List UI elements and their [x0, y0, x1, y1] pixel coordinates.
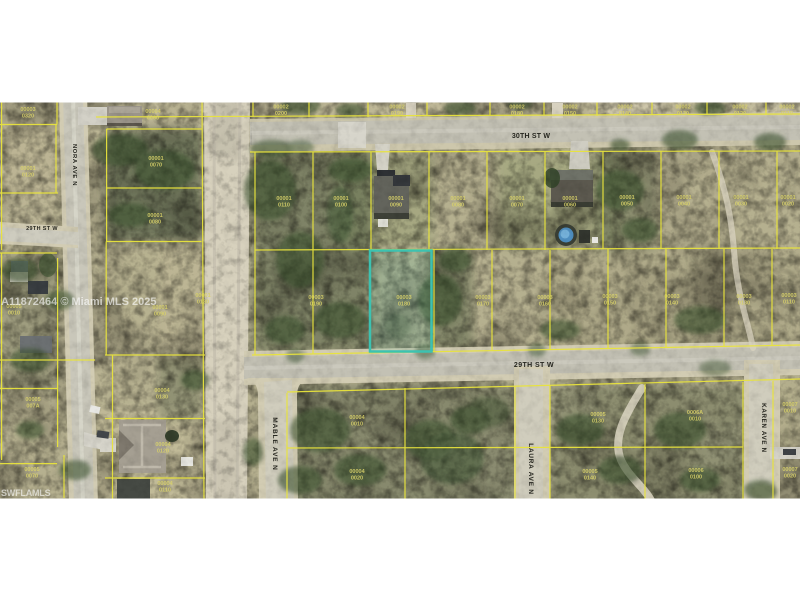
svg-text:000010070: 000010070 [509, 196, 524, 209]
svg-text:SWFLAMLS: SWFLAMLS [1, 488, 51, 498]
svg-text:000030110: 000030110 [781, 293, 796, 306]
svg-text:000030150: 000030150 [602, 294, 617, 307]
svg-text:000030190: 000030190 [308, 295, 323, 308]
svg-text:000020180: 000020180 [509, 105, 524, 118]
svg-text:000050130: 000050130 [590, 412, 605, 425]
svg-text:NORA AVE N: NORA AVE N [71, 144, 77, 186]
svg-text:000050070: 000050070 [24, 467, 39, 480]
svg-text:000010070: 000010070 [148, 156, 163, 169]
svg-text:000020140: 000020140 [617, 105, 632, 118]
svg-text:000070020: 000070020 [782, 467, 797, 480]
svg-text:30TH ST W: 30TH ST W [512, 133, 551, 140]
svg-text:000010100: 000010100 [333, 196, 348, 209]
svg-text:000020130: 000020130 [675, 105, 690, 118]
svg-text:000070010: 000070010 [782, 402, 797, 415]
svg-text:0006A0010: 0006A0010 [687, 410, 703, 423]
svg-text:000010110: 000010110 [276, 196, 291, 209]
svg-text:000030180: 000030180 [396, 295, 411, 308]
svg-text:000020190: 000020190 [389, 105, 404, 118]
svg-text:000050140: 000050140 [582, 469, 597, 482]
svg-text:000060100: 000060100 [688, 468, 703, 481]
svg-text:000020110: 000020110 [779, 105, 794, 118]
svg-text:000010080: 000010080 [147, 213, 162, 226]
svg-text:29TH ST W: 29TH ST W [26, 226, 58, 232]
svg-text:000010080: 000010080 [450, 196, 465, 209]
svg-text:000010040: 000010040 [676, 195, 691, 208]
svg-text:000030140: 000030140 [664, 294, 679, 307]
svg-text:000030130: 000030130 [736, 294, 751, 307]
svg-text:000030320: 000030320 [20, 107, 35, 120]
svg-text:29TH ST W: 29TH ST W [514, 362, 554, 369]
svg-text:000010050: 000010050 [619, 195, 634, 208]
svg-text:000010060: 000010060 [562, 196, 577, 209]
svg-text:MABLE AVE N: MABLE AVE N [271, 417, 278, 470]
svg-text:000010120: 000010120 [20, 166, 35, 179]
svg-text:000020200: 000020200 [273, 105, 288, 118]
svg-text:000010090: 000010090 [388, 196, 403, 209]
svg-text:000030170: 000030170 [475, 295, 490, 308]
svg-text:KAREN AVE N: KAREN AVE N [760, 403, 767, 453]
svg-text:A11872464 © Miami MLS 2025: A11872464 © Miami MLS 2025 [1, 296, 156, 308]
svg-text:LAURA AVE N: LAURA AVE N [527, 443, 534, 495]
svg-text:000020120: 000020120 [732, 105, 747, 118]
svg-text:000030160: 000030160 [537, 295, 552, 308]
svg-text:000010020: 000010020 [780, 195, 795, 208]
svg-text:000020150: 000020150 [562, 105, 577, 118]
svg-text:000010030: 000010030 [733, 195, 748, 208]
svg-text:000010130: 000010130 [195, 293, 210, 306]
svg-text:00005007A: 00005007A [25, 397, 40, 410]
